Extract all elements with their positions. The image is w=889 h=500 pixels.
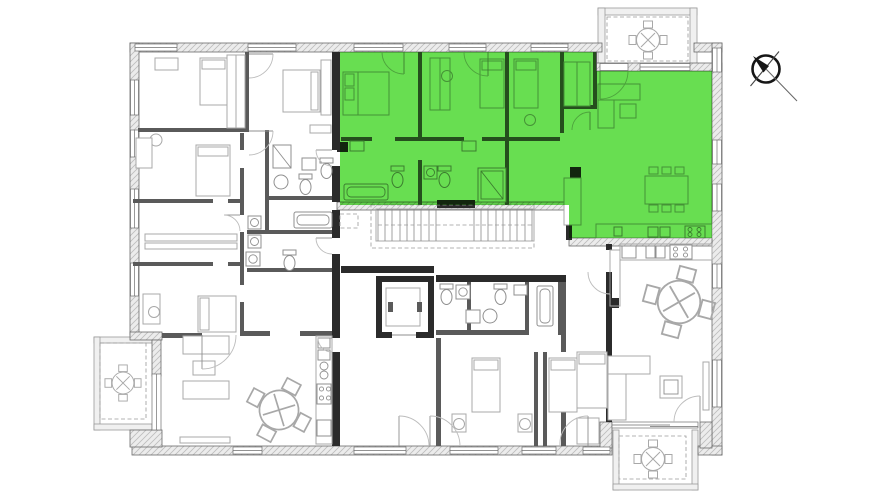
desk <box>145 234 237 241</box>
dishwasher <box>622 246 636 258</box>
bathroom-fixtures <box>246 145 333 271</box>
sofa <box>183 336 229 354</box>
single-bed <box>200 58 227 105</box>
sofa <box>183 381 229 399</box>
single-bed <box>198 296 236 332</box>
dining-table-round <box>235 366 322 453</box>
single-bed <box>196 145 230 196</box>
round-table <box>634 440 672 478</box>
north-arrow-icon <box>751 52 798 102</box>
washbasin-icon <box>466 310 480 323</box>
washbasin-icon <box>274 175 288 189</box>
stove-icon <box>670 245 692 259</box>
washbasin-icon <box>483 309 497 323</box>
balcony-left <box>94 337 152 430</box>
tv-board <box>180 437 230 443</box>
bathtub-icon <box>294 212 332 228</box>
living-room <box>180 336 323 454</box>
single-bed <box>472 358 500 412</box>
round-table <box>105 365 141 401</box>
toilet-icon <box>284 256 295 271</box>
balcony-bottom-right <box>613 430 698 490</box>
single-bed <box>577 352 607 408</box>
desk <box>136 138 152 168</box>
toilet-icon <box>300 180 311 195</box>
washer-icon <box>246 252 260 266</box>
double-bed <box>283 70 320 112</box>
toilet-icon <box>495 290 506 305</box>
fridge <box>317 420 331 436</box>
wardrobe <box>321 60 331 115</box>
sink-icon <box>646 246 655 258</box>
desk <box>155 58 178 70</box>
balcony-top-right <box>598 8 697 70</box>
bathtub-icon <box>537 286 553 326</box>
dining-table-round <box>636 259 722 345</box>
tv-board <box>703 362 709 410</box>
furniture-bottom-middle-apartment <box>440 284 592 434</box>
elevator <box>376 276 434 338</box>
sink-icon <box>320 362 328 370</box>
toilet-icon <box>441 290 452 305</box>
washbasin-icon <box>302 158 316 170</box>
wardrobe <box>143 294 160 324</box>
floor-plan-canvas <box>0 0 889 500</box>
staircase <box>340 205 534 248</box>
washer-icon <box>456 285 470 299</box>
coffee-table <box>660 376 682 398</box>
washbasin-icon <box>514 285 527 295</box>
washer-icon <box>248 216 261 229</box>
washer-icon <box>248 235 261 248</box>
single-bed <box>549 358 577 412</box>
sofa <box>608 356 650 420</box>
sideboard <box>310 125 331 133</box>
round-table <box>629 21 667 59</box>
furniture-left-apartment <box>136 55 333 454</box>
floor-plan-page <box>0 0 889 500</box>
